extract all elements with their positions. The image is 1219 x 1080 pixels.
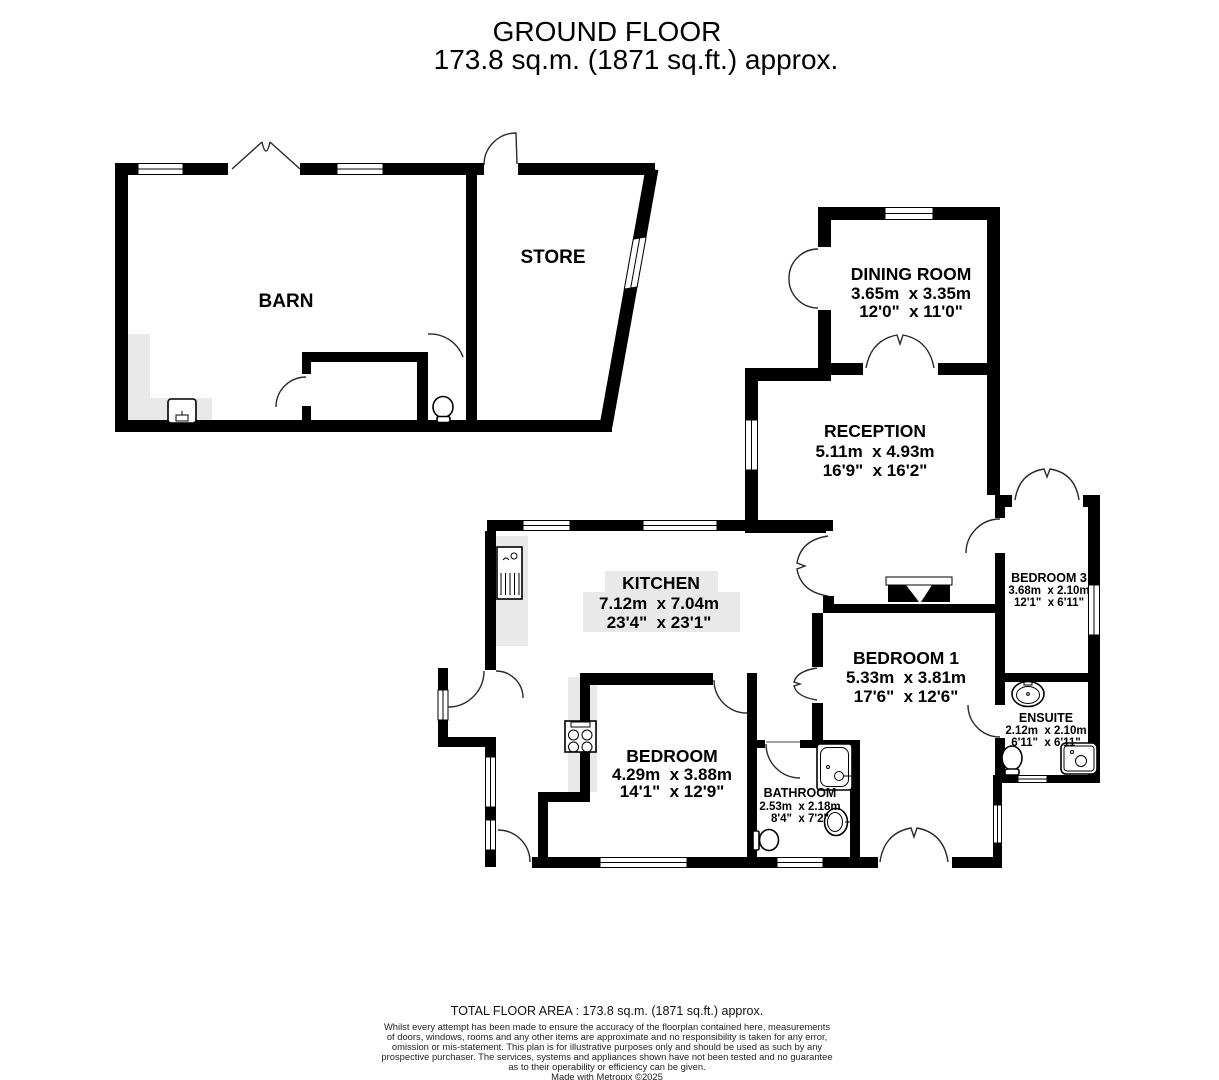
window bbox=[643, 521, 717, 531]
toilet-icon bbox=[433, 397, 453, 423]
wall-segment bbox=[485, 747, 496, 757]
door-arc bbox=[276, 377, 306, 407]
room-dims-imperial: 12'0" x 11'0" bbox=[859, 302, 963, 321]
room-dims-metric: 2.12m x 2.10m bbox=[1005, 725, 1086, 737]
wall-segment bbox=[993, 783, 1002, 805]
wall-segment bbox=[823, 604, 1000, 613]
window bbox=[624, 237, 646, 289]
room-dims-imperial: 23'4" x 23'1" bbox=[607, 613, 712, 632]
wall-segment bbox=[580, 673, 713, 685]
wall-segment bbox=[570, 520, 643, 531]
room-name: BEDROOM 3 bbox=[1011, 571, 1087, 585]
door-arc bbox=[966, 519, 1000, 553]
door-arc bbox=[714, 680, 747, 713]
wall-segment bbox=[183, 163, 228, 175]
room-label-reception: RECEPTION 5.11m x 4.93m 16'9" x 16'2" bbox=[815, 421, 934, 480]
cooker-icon bbox=[565, 721, 596, 752]
footer-block: TOTAL FLOOR AREA : 173.8 sq.m. (1871 sq.… bbox=[381, 1004, 832, 1080]
room-label-dining: DINING ROOM 3.65m x 3.35m 12'0" x 11'0" bbox=[851, 264, 972, 321]
title-line2: 173.8 sq.m. (1871 sq.ft.) approx. bbox=[434, 44, 839, 75]
room-dims-metric: 5.33m x 3.81m bbox=[846, 668, 966, 687]
wall-segment bbox=[993, 843, 1002, 868]
window bbox=[777, 858, 823, 868]
room-dims-metric: 3.68m x 2.10m bbox=[1008, 585, 1089, 597]
credit-line: Made with Metropix ©2025 bbox=[551, 1071, 663, 1080]
room-dims-imperial: 12'1" x 6'11" bbox=[1014, 597, 1084, 609]
window bbox=[746, 420, 758, 470]
wall-segment bbox=[300, 163, 337, 175]
wall-segment bbox=[687, 857, 777, 868]
room-label-bedroom1: BEDROOM 1 5.33m x 3.81m 17'6" x 12'6" bbox=[846, 648, 966, 706]
room-dims-imperial: 14'1" x 12'9" bbox=[620, 782, 725, 801]
title-block: GROUND FLOOR 173.8 sq.m. (1871 sq.ft.) a… bbox=[434, 16, 839, 75]
door-arc bbox=[866, 335, 934, 368]
window bbox=[600, 858, 687, 868]
room-name: BEDROOM 1 bbox=[853, 648, 959, 668]
window bbox=[486, 820, 496, 850]
room-dims-imperial: 17'6" x 12'6" bbox=[854, 687, 959, 706]
floorplan-canvas: GROUND FLOOR 173.8 sq.m. (1871 sq.ft.) a… bbox=[0, 0, 1219, 1080]
window bbox=[523, 521, 570, 531]
wall-segment bbox=[485, 850, 496, 867]
door-arc bbox=[232, 142, 300, 169]
room-label-ensuite: ENSUITE 2.12m x 2.10m 6'11" x 6'11" bbox=[1005, 711, 1086, 749]
wall-segment bbox=[812, 613, 823, 667]
room-label-bedroom: BEDROOM 4.29m x 3.88m 14'1" x 12'9" bbox=[612, 746, 732, 801]
wall-segment bbox=[417, 352, 428, 432]
window bbox=[885, 208, 933, 220]
room-name: DINING ROOM bbox=[851, 264, 972, 284]
wall-segment bbox=[745, 368, 758, 420]
wall-segment bbox=[466, 163, 477, 432]
toilet-icon bbox=[753, 830, 779, 851]
window bbox=[1089, 585, 1100, 635]
room-label-bedroom3: BEDROOM 3 3.68m x 2.10m 12'1" x 6'11" bbox=[1008, 571, 1089, 609]
door-arc bbox=[448, 671, 484, 707]
wall-segment bbox=[717, 520, 833, 531]
wall-segment bbox=[485, 531, 496, 670]
fireplace-icon bbox=[886, 577, 952, 602]
door-arc bbox=[789, 249, 818, 308]
window bbox=[438, 690, 448, 720]
wall-segment bbox=[302, 362, 311, 374]
window bbox=[994, 805, 1002, 843]
main-house: DINING ROOM 3.65m x 3.35m 12'0" x 11'0" … bbox=[438, 207, 1100, 868]
wall-segment bbox=[995, 553, 1005, 705]
door-arc bbox=[498, 830, 530, 862]
door-arc bbox=[428, 334, 463, 357]
door-arc bbox=[496, 671, 523, 698]
room-name: BATHROOM bbox=[764, 786, 837, 800]
title-line1: GROUND FLOOR bbox=[493, 16, 722, 47]
window bbox=[1018, 776, 1047, 783]
wall-segment bbox=[115, 163, 128, 432]
wall-segment bbox=[1088, 495, 1100, 585]
door-arc bbox=[766, 744, 800, 778]
door-arc bbox=[797, 536, 828, 596]
wall-segment bbox=[938, 363, 1000, 375]
room-dims-imperial: 6'11" x 6'11" bbox=[1011, 737, 1080, 749]
door-arc bbox=[968, 705, 1000, 737]
sink-icon bbox=[497, 547, 522, 599]
room-name: ENSUITE bbox=[1019, 711, 1073, 725]
wall-segment bbox=[438, 737, 496, 747]
wall-segment bbox=[302, 352, 428, 362]
room-dims-imperial: 8'4" x 7'2" bbox=[771, 813, 829, 825]
wall-segment bbox=[987, 207, 1000, 495]
toilet-icon bbox=[1002, 746, 1022, 775]
floorplan-page: GROUND FLOOR 173.8 sq.m. (1871 sq.ft.) a… bbox=[0, 0, 1219, 1080]
door-arc bbox=[880, 828, 948, 862]
wall-segment bbox=[538, 792, 548, 867]
door-arc bbox=[484, 133, 517, 165]
room-name: BEDROOM bbox=[626, 746, 717, 766]
window bbox=[337, 164, 383, 175]
door-arc bbox=[1015, 469, 1079, 500]
window bbox=[486, 757, 496, 807]
room-dims-metric: 7.12m x 7.04m bbox=[599, 594, 719, 613]
room-label-store: STORE bbox=[520, 247, 585, 268]
room-label-barn: BARN bbox=[259, 291, 314, 312]
wall-segment bbox=[995, 507, 1005, 518]
wall-segment bbox=[1047, 775, 1100, 783]
sink-icon bbox=[1012, 681, 1044, 707]
bath-icon bbox=[817, 744, 852, 790]
room-dims-metric: 3.65m x 3.35m bbox=[851, 284, 971, 303]
room-dims-metric: 2.53m x 2.18m bbox=[759, 801, 840, 813]
room-label-bathroom: BATHROOM 2.53m x 2.18m 8'4" x 7'2" bbox=[759, 786, 840, 825]
room-dims-imperial: 16'9" x 16'2" bbox=[823, 461, 928, 480]
wall-segment bbox=[438, 668, 448, 690]
wall-segment bbox=[606, 169, 652, 426]
wall-segment bbox=[993, 775, 1018, 783]
total-floor-area: TOTAL FLOOR AREA : 173.8 sq.m. (1871 sq.… bbox=[451, 1004, 763, 1018]
wall-segment bbox=[487, 520, 523, 531]
wall-segment bbox=[518, 163, 655, 175]
wall-segment bbox=[995, 673, 1100, 682]
wall-segment bbox=[485, 807, 496, 820]
sink-icon bbox=[168, 399, 196, 423]
room-name: RECEPTION bbox=[824, 421, 926, 441]
wall-segment bbox=[302, 406, 311, 421]
wall-segment bbox=[818, 207, 831, 247]
wall-segment bbox=[995, 495, 1012, 507]
wall-segment bbox=[812, 703, 823, 747]
door-arc bbox=[794, 668, 817, 700]
room-name: KITCHEN bbox=[622, 573, 700, 593]
barn-building: BARN STORE bbox=[115, 133, 655, 432]
wall-segment bbox=[747, 740, 765, 748]
window bbox=[138, 164, 183, 175]
room-dims-metric: 5.11m x 4.93m bbox=[815, 442, 934, 461]
wall-segment bbox=[823, 596, 834, 613]
